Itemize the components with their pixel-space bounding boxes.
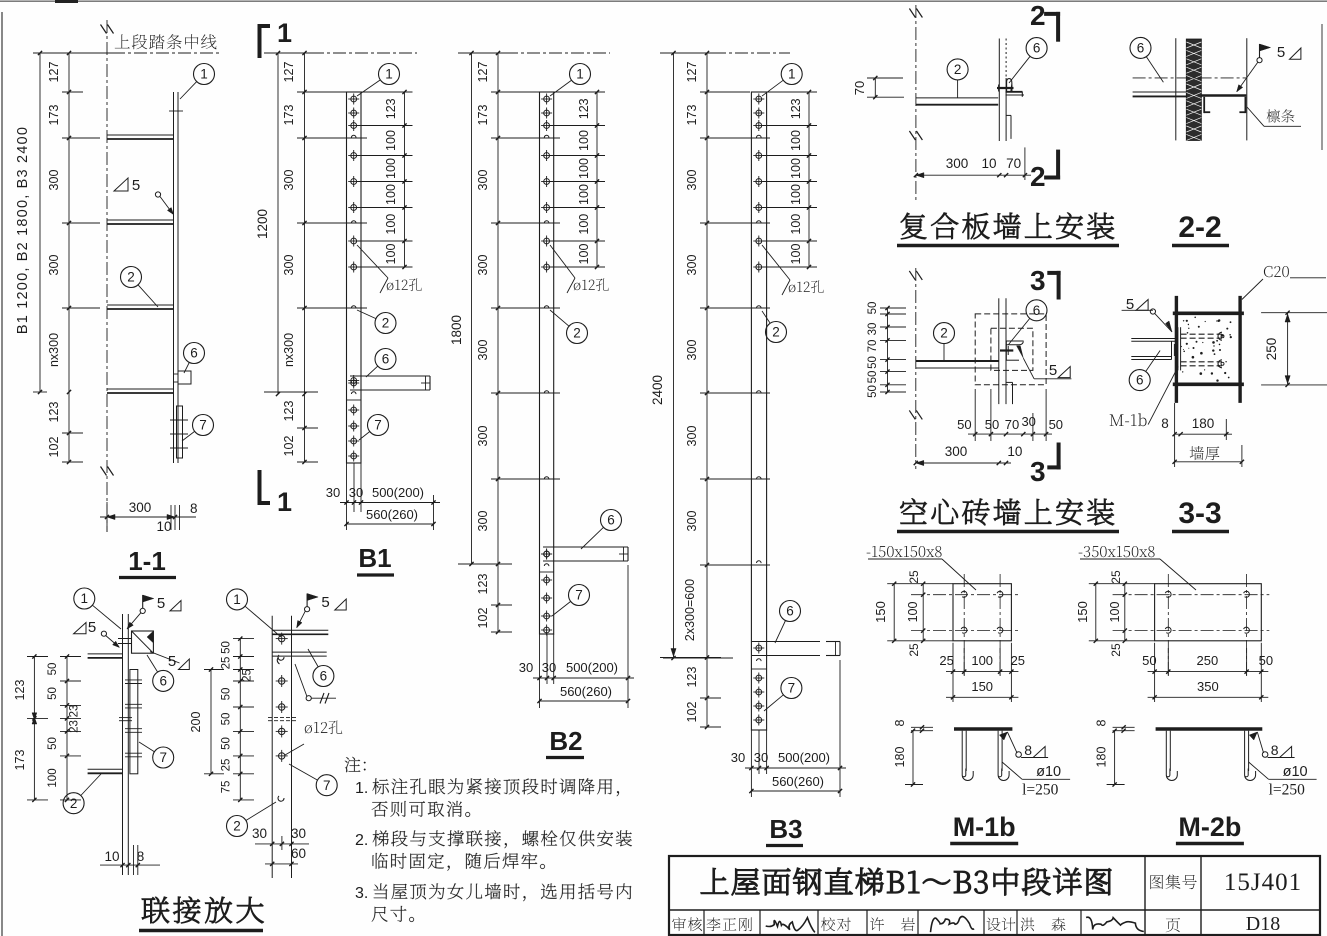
svg-text:B3: B3	[769, 814, 802, 844]
svg-text:300: 300	[685, 511, 699, 532]
svg-text:300: 300	[282, 170, 296, 191]
svg-text:173: 173	[13, 750, 27, 771]
svg-text:70: 70	[1005, 417, 1019, 432]
svg-text:6: 6	[607, 513, 615, 528]
svg-text:350: 350	[1197, 679, 1219, 694]
svg-text:100: 100	[577, 184, 591, 205]
svg-text:127: 127	[476, 62, 490, 83]
svg-text:6: 6	[320, 669, 328, 684]
svg-text:6: 6	[1137, 41, 1145, 56]
svg-text:1800: 1800	[449, 315, 464, 345]
svg-text:23: 23	[69, 720, 81, 733]
svg-text:30: 30	[291, 826, 306, 841]
svg-text:500(200): 500(200)	[778, 750, 830, 765]
svg-text:25: 25	[907, 643, 921, 657]
svg-text:123: 123	[384, 98, 398, 119]
svg-text:25: 25	[907, 570, 921, 584]
svg-text:2: 2	[954, 62, 962, 77]
svg-text:50: 50	[47, 687, 59, 700]
svg-text:173: 173	[685, 105, 699, 126]
svg-text:300: 300	[476, 170, 490, 191]
svg-text:300: 300	[476, 255, 490, 276]
svg-text:6: 6	[159, 674, 167, 689]
svg-text:100: 100	[384, 158, 398, 179]
svg-text:180: 180	[1192, 416, 1215, 431]
svg-text:50: 50	[1259, 653, 1273, 668]
svg-text:2: 2	[940, 326, 948, 341]
svg-text:25: 25	[1109, 643, 1123, 657]
svg-text:30: 30	[349, 485, 363, 500]
svg-text:123: 123	[685, 667, 699, 688]
svg-text:300: 300	[476, 511, 490, 532]
svg-text:nx300: nx300	[47, 333, 61, 367]
svg-text:25: 25	[1011, 653, 1025, 668]
svg-text:2400: 2400	[650, 375, 665, 405]
svg-text:50: 50	[957, 417, 971, 432]
svg-text:102: 102	[47, 437, 61, 458]
svg-text:300: 300	[476, 340, 490, 361]
svg-text:6: 6	[1136, 373, 1144, 388]
svg-text:500(200): 500(200)	[372, 485, 424, 500]
svg-text:100: 100	[384, 130, 398, 151]
svg-text:7: 7	[199, 418, 207, 433]
svg-text:5: 5	[1277, 44, 1285, 61]
svg-text:300: 300	[685, 426, 699, 447]
svg-text:30: 30	[754, 750, 768, 765]
svg-text:10: 10	[1007, 444, 1022, 459]
svg-text:300: 300	[129, 500, 152, 515]
svg-text:50: 50	[221, 641, 233, 654]
svg-text:10: 10	[104, 849, 119, 864]
svg-text:50: 50	[47, 663, 59, 676]
svg-text:2: 2	[772, 325, 780, 340]
svg-text:250: 250	[1197, 653, 1219, 668]
svg-text:15J401: 15J401	[1224, 869, 1302, 896]
svg-text:560(260): 560(260)	[560, 684, 612, 699]
svg-text:127: 127	[282, 62, 296, 83]
svg-text:6: 6	[382, 352, 390, 367]
svg-text:25: 25	[221, 759, 233, 772]
svg-text:250: 250	[1264, 338, 1279, 361]
svg-text:1.: 1.	[355, 780, 368, 797]
svg-text:100: 100	[906, 602, 920, 623]
svg-text:180: 180	[1095, 747, 1109, 768]
svg-text:150: 150	[971, 679, 993, 694]
svg-text:30: 30	[326, 485, 340, 500]
svg-text:8: 8	[1161, 416, 1169, 431]
svg-text:100: 100	[789, 244, 803, 265]
svg-text:300: 300	[47, 255, 61, 276]
svg-text:1200: 1200	[255, 209, 270, 239]
svg-text:50: 50	[985, 417, 999, 432]
svg-text:ø10: ø10	[1036, 764, 1061, 780]
svg-text:8: 8	[190, 501, 198, 516]
svg-text:8: 8	[1095, 719, 1109, 726]
svg-text:8: 8	[1271, 742, 1279, 758]
svg-text:5: 5	[321, 594, 329, 611]
svg-text:25: 25	[221, 657, 233, 670]
svg-text:7: 7	[575, 588, 583, 603]
svg-text:3: 3	[1030, 265, 1046, 296]
svg-text:70: 70	[867, 340, 879, 353]
svg-text:1: 1	[788, 67, 796, 82]
svg-text:5: 5	[168, 653, 176, 670]
svg-text:30: 30	[1021, 414, 1035, 429]
svg-text:102: 102	[685, 702, 699, 723]
svg-text:1: 1	[81, 591, 89, 606]
svg-text:50: 50	[47, 737, 59, 750]
svg-text:23: 23	[69, 705, 81, 718]
svg-text:100: 100	[577, 244, 591, 265]
svg-text:123: 123	[47, 402, 61, 423]
svg-text:123: 123	[476, 574, 490, 595]
svg-text:D18: D18	[1246, 913, 1280, 935]
svg-text:560(260): 560(260)	[772, 774, 824, 789]
svg-text:l=250: l=250	[1269, 782, 1306, 799]
svg-text:30: 30	[519, 660, 533, 675]
svg-text:ø10: ø10	[1283, 764, 1308, 780]
svg-text:50: 50	[221, 737, 233, 750]
svg-text:50: 50	[867, 371, 879, 384]
svg-text:173: 173	[282, 105, 296, 126]
svg-text:2-2: 2-2	[1178, 211, 1221, 244]
svg-text:6: 6	[786, 604, 794, 619]
svg-text:2: 2	[573, 326, 581, 341]
svg-text:100: 100	[789, 158, 803, 179]
svg-text:173: 173	[47, 105, 61, 126]
svg-text:30: 30	[731, 750, 745, 765]
svg-text:60: 60	[291, 846, 306, 861]
svg-text:1: 1	[277, 18, 292, 48]
svg-text:7: 7	[374, 418, 382, 433]
svg-text:2: 2	[1030, 0, 1046, 31]
svg-text:300: 300	[685, 255, 699, 276]
svg-text:50: 50	[1142, 653, 1156, 668]
svg-text:l=250: l=250	[1022, 782, 1059, 799]
svg-text:1-1: 1-1	[128, 546, 166, 576]
svg-text:180: 180	[893, 747, 907, 768]
svg-text:2: 2	[70, 796, 78, 811]
svg-text:100: 100	[384, 184, 398, 205]
svg-text:123: 123	[789, 98, 803, 119]
svg-text:M-1b: M-1b	[953, 812, 1016, 842]
svg-text:2: 2	[382, 316, 390, 331]
svg-text:50: 50	[867, 385, 879, 398]
svg-text:200: 200	[189, 712, 203, 733]
svg-text:30: 30	[542, 660, 556, 675]
svg-text:150: 150	[1075, 601, 1090, 623]
svg-text:1: 1	[233, 592, 241, 607]
svg-text:6: 6	[190, 346, 198, 361]
svg-text:M-2b: M-2b	[1178, 812, 1241, 842]
svg-text:1: 1	[576, 67, 584, 82]
svg-text:10: 10	[981, 156, 996, 171]
svg-text:5: 5	[157, 595, 165, 612]
svg-text:102: 102	[476, 608, 490, 629]
svg-text:30: 30	[252, 826, 267, 841]
svg-text:75: 75	[221, 781, 233, 794]
svg-text:300: 300	[47, 170, 61, 191]
svg-text:127: 127	[47, 62, 61, 83]
svg-text:300: 300	[685, 170, 699, 191]
svg-text:2: 2	[127, 270, 135, 285]
svg-text:300: 300	[282, 255, 296, 276]
svg-text:150: 150	[873, 601, 888, 623]
svg-text:127: 127	[685, 62, 699, 83]
svg-text:2: 2	[1030, 161, 1046, 192]
svg-text:B2: B2	[549, 726, 582, 756]
svg-text:100: 100	[47, 768, 59, 787]
svg-text:100: 100	[577, 130, 591, 151]
svg-text:300: 300	[946, 156, 969, 171]
svg-text:10: 10	[156, 519, 171, 534]
svg-text:8: 8	[893, 719, 907, 726]
svg-text:500(200): 500(200)	[566, 660, 618, 675]
svg-text:3: 3	[1030, 456, 1046, 487]
svg-text:2x300=600: 2x300=600	[683, 579, 697, 641]
svg-text:100: 100	[971, 653, 993, 668]
svg-text:560(260): 560(260)	[366, 507, 418, 522]
svg-text:B1 1200, B2 1800, B3 2400: B1 1200, B2 1800, B3 2400	[15, 126, 31, 334]
svg-text:100: 100	[577, 214, 591, 235]
svg-text:5: 5	[88, 619, 96, 636]
svg-text:173: 173	[476, 105, 490, 126]
svg-text:1: 1	[277, 487, 292, 517]
svg-text:B1: B1	[358, 543, 391, 573]
svg-text:25: 25	[242, 669, 254, 682]
svg-text:1: 1	[385, 67, 393, 82]
svg-text:123: 123	[282, 401, 296, 422]
svg-text:100: 100	[384, 214, 398, 235]
svg-text:102: 102	[282, 436, 296, 457]
svg-text:123: 123	[13, 680, 27, 701]
svg-text:123: 123	[577, 98, 591, 119]
svg-text:70: 70	[1006, 156, 1021, 171]
svg-text:8: 8	[1024, 742, 1032, 758]
svg-text:100: 100	[789, 130, 803, 151]
svg-text:100: 100	[384, 244, 398, 265]
svg-text:7: 7	[788, 681, 796, 696]
svg-text:nx300: nx300	[282, 333, 296, 367]
svg-text:5: 5	[1049, 362, 1057, 379]
svg-text:100: 100	[577, 158, 591, 179]
svg-text:300: 300	[476, 426, 490, 447]
svg-text:50: 50	[867, 302, 879, 315]
svg-text:6: 6	[1033, 303, 1041, 318]
svg-text:3.: 3.	[355, 885, 368, 902]
svg-text:50: 50	[221, 713, 233, 726]
svg-text:30: 30	[867, 323, 879, 336]
svg-text:300: 300	[945, 444, 968, 459]
svg-text:1: 1	[200, 67, 208, 82]
svg-text:2.: 2.	[355, 832, 368, 849]
svg-text:7: 7	[323, 778, 331, 793]
svg-text:50: 50	[1049, 417, 1063, 432]
svg-text:50: 50	[221, 688, 233, 701]
svg-text:70: 70	[852, 81, 867, 95]
svg-text:300: 300	[685, 340, 699, 361]
svg-text:2: 2	[233, 819, 241, 834]
svg-text:7: 7	[159, 750, 167, 765]
svg-text:25: 25	[939, 653, 953, 668]
svg-text:50: 50	[867, 356, 879, 369]
svg-text:25: 25	[1109, 570, 1123, 584]
svg-text:100: 100	[789, 184, 803, 205]
svg-text:100: 100	[1108, 602, 1122, 623]
svg-text:6: 6	[1033, 41, 1041, 56]
svg-text:5: 5	[132, 177, 140, 194]
svg-text:100: 100	[789, 214, 803, 235]
svg-text:3-3: 3-3	[1178, 497, 1221, 530]
